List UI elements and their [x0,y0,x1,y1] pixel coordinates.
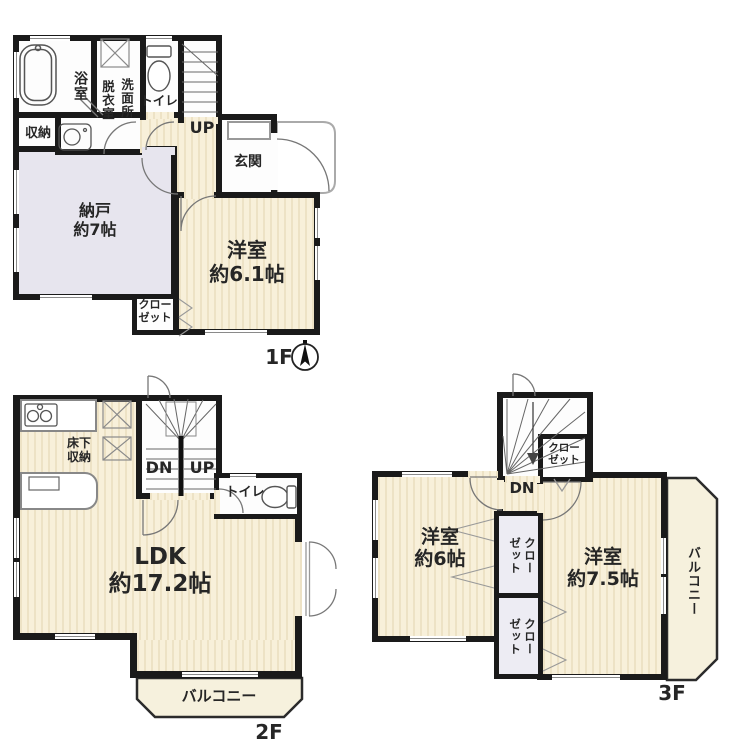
dressing-room-label: 脱衣室 [99,71,114,129]
opening-stairs2f [150,493,210,500]
balcony-3f-label: バルコニー [682,505,700,657]
outside-area-2f [222,395,302,473]
entrance-step [227,121,271,140]
underfloor-line2: 収納 [58,450,100,464]
up-2f-label: UP [186,459,218,478]
western-75-label: 洋室約7.5帖 [540,546,666,591]
window [410,636,466,641]
western-6-name: 洋室 [388,526,492,548]
western-6-size: 約6帖 [388,548,492,570]
window [14,228,19,272]
window [14,170,19,214]
opening-room6-door [468,471,498,478]
dn-3f-label: DN [505,480,539,498]
opening-toilet1f [146,112,174,119]
opening-nando [142,147,175,155]
western-1f-size: 約6.1帖 [183,263,311,287]
western-75-name: 洋室 [540,546,666,568]
staircase-1f [178,35,222,123]
floor-label-3f: 3F [652,682,692,706]
wall-2f-right-lower [295,616,302,678]
nando-name: 納戸 [55,202,135,221]
balcony-2f-label: バルコニー [160,688,278,706]
window [402,472,452,477]
western-6-label: 洋室約6帖 [388,526,492,571]
ldk-name: LDK [90,544,230,571]
western-75-size: 約7.5帖 [540,568,666,590]
up-1f-label: UP [184,119,220,138]
closet-3f-b-label: クローゼット [501,601,537,673]
staircase-2f [136,395,222,499]
closet-a-col1: クロー [522,520,537,592]
toilet-1f-label: トイレ [139,94,179,109]
ldk-label: LDK約17.2帖 [90,544,230,598]
entrance-porch-outline [277,122,335,193]
window [230,474,256,479]
closet-3f-top-label: クローゼット [541,442,587,467]
window [373,500,378,540]
toilet-2f-label: トイレ [222,485,268,500]
window [30,36,70,41]
nando-size: 約7帖 [55,221,135,240]
floor-label-1f: 1F [262,346,296,370]
underfloor-storage-label: 床下収納 [58,436,100,464]
closet-top-line1: クロー [541,442,587,454]
window [14,562,19,597]
entrance-label: 玄関 [226,154,270,171]
window [14,52,19,98]
window [315,246,320,280]
window [373,558,378,598]
closet-1f-line2: ゼット [136,312,174,325]
storage-label: 収納 [19,126,57,141]
ldk-size: 約17.2帖 [90,571,230,598]
opening-corridor-room6 [497,480,504,509]
western-1f-name: 洋室 [183,239,311,263]
window [55,634,95,639]
opening-western1f [184,192,214,199]
underfloor-line1: 床下 [58,436,100,450]
window [552,675,620,680]
closet-a-col2: ゼット [507,520,522,592]
window [315,208,320,238]
closet-b-col2: ゼット [507,601,522,673]
dn-2f-label: DN [142,459,176,478]
window [205,330,267,335]
window [182,672,258,677]
washroom-label: 洗面所 [118,69,133,127]
closet-top-line2: ゼット [541,454,587,466]
closet-1f-label: クローゼット [136,299,174,325]
kitchen-stove-counter [20,399,97,432]
closet-b-col1: クロー [522,601,537,673]
opening-toilet2f [214,490,220,514]
window [40,295,92,300]
window [14,518,19,558]
opening-entrance-door [271,133,278,190]
western-1f-label: 洋室約6.1帖 [183,239,311,286]
closet-3f-a-label: クローゼット [501,520,537,592]
kitchen-island-counter [20,472,98,510]
window [146,36,172,41]
nando-label: 納戸約7帖 [55,202,135,240]
floor-label-2f: 2F [250,721,288,745]
bathroom-label: 浴室 [70,58,88,114]
